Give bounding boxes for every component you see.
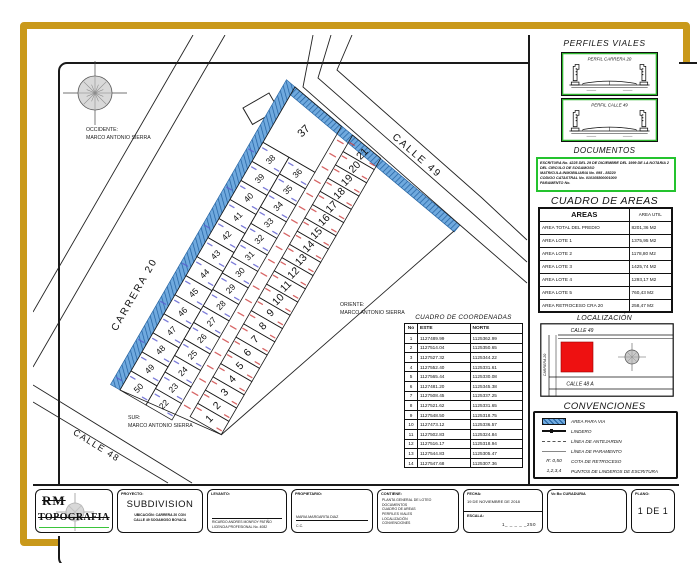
- contiene-lines: PLANTA GENERAL DE LOTEODOCUMENTOSCUADRO …: [382, 498, 431, 526]
- legend-row: 1,2,3,4PUNTOS DE LINDEROS DE ESCRITURA: [537, 466, 674, 476]
- contiene-line: CONVENCIONES: [382, 521, 431, 526]
- lot-number: 27: [205, 315, 219, 329]
- column-header: NORTE: [470, 324, 523, 334]
- lot-number: 6: [241, 346, 254, 359]
- cell: 1125331.61: [470, 362, 523, 372]
- calle48-line: [33, 385, 192, 483]
- table-row: 111127502.831125324.84: [405, 429, 523, 439]
- legend-label: LÍNEA DE PARAMENTO: [571, 449, 622, 454]
- lot-number: 1: [203, 413, 216, 426]
- levanto-lines: RICARDO ANDRES MONROY PATIÑOLICENCIA PRO…: [212, 520, 272, 530]
- map-calle48a-label: CALLE 48 A: [566, 382, 594, 388]
- escala-value: 1_ _ _ _ _250: [502, 522, 536, 527]
- road-profile-svg: PERFIL CARRERA 20: [562, 53, 657, 95]
- cuadro-areas-title: CUADRO DE AREAS: [530, 195, 679, 207]
- cell: 9: [405, 410, 418, 420]
- lot-number: 50: [132, 381, 146, 395]
- cell: 1125305.47: [470, 449, 523, 459]
- carrera20-line: [33, 35, 193, 312]
- lot-number: 41: [231, 209, 245, 223]
- calle49-line: [318, 35, 527, 262]
- legend-label: PUNTOS DE LINDEROS DE ESCRITURA: [571, 469, 658, 474]
- areas-table: AREASAREA UTILAREA TOTAL DEL PREDIO8201,…: [538, 207, 673, 313]
- cell: 4: [405, 362, 418, 372]
- legend-label: LÍNEA DE ANTEJARDIN: [571, 439, 622, 444]
- logo-box: RM TOPOGRAFIA: [35, 489, 113, 533]
- signature-line: [212, 518, 282, 519]
- cell: 1125350.65: [470, 343, 523, 353]
- label-occidente: OCCIDENTE:: [86, 127, 118, 133]
- cell: 1125318.75: [470, 410, 523, 420]
- legend-symbol: [537, 418, 571, 425]
- levanto-line: LICENCIA PROFESIONAL No. 4082: [212, 525, 272, 530]
- lot-number: 31: [243, 249, 257, 263]
- lot-number: 47: [165, 324, 179, 338]
- cell: 1293,17 M2: [629, 273, 672, 286]
- lot-number: 3: [218, 386, 231, 399]
- contiene-box: CONTIENE: PLANTA GENERAL DE LOTEODOCUMEN…: [377, 489, 459, 533]
- cell: 1125345.38: [470, 381, 523, 391]
- north-compass-icon: [63, 61, 127, 125]
- map-calle49-label: CALLE 49: [571, 328, 594, 334]
- cell: 14: [405, 458, 418, 468]
- table-row: AREA LOTE 31425,74 M2: [539, 260, 672, 273]
- plano-box: PLANO: 1 DE 1: [631, 489, 675, 533]
- label-occidente: MARCO ANTONIO SIERRA: [86, 135, 151, 141]
- lot-number: 46: [176, 305, 190, 319]
- lot-number: 8: [257, 320, 270, 333]
- cell: 1127547.68: [418, 458, 471, 468]
- lot-number: 35: [281, 183, 295, 197]
- logo-company-text: TOPOGRAFIA: [38, 512, 112, 523]
- propietario-box: PROPIETARIO: MARIA MARGARITA DIAZ C.C.: [291, 489, 373, 533]
- lot-number: 23: [166, 381, 180, 395]
- documento-line: ESCRITURA No. 4225 DEL 29 DE DICIEMBRE D…: [540, 161, 672, 171]
- cell: 1127516.17: [418, 439, 471, 449]
- legend-label: AREA PARA VIA: [571, 419, 605, 424]
- lot-number: 39: [253, 171, 267, 185]
- cell: 760,43 M2: [629, 286, 672, 299]
- lot-number: 44: [198, 267, 212, 281]
- cell: 11: [405, 429, 418, 439]
- antejardin-swatch: [542, 441, 566, 442]
- table-row: 121127516.171125318.94: [405, 439, 523, 449]
- contiene-label: CONTIENE:: [381, 492, 402, 496]
- lot-number: 25: [185, 348, 199, 362]
- cell: AREA LOTE 1: [539, 234, 629, 247]
- cell: 1375,95 M2: [629, 234, 672, 247]
- table-row: 51127565.441125330.08: [405, 372, 523, 382]
- lot-number: 9: [264, 307, 277, 320]
- cell: 10: [405, 420, 418, 430]
- right-panel: PERFILES VIALES PERFIL CARRERA 20 PERFIL…: [528, 35, 679, 484]
- road-profile-carrera20: PERFIL CARRERA 20: [561, 52, 658, 96]
- proyecto-value: SUBDIVISION: [118, 499, 202, 510]
- cell: AREA LOTE 3: [539, 260, 629, 273]
- label-sur: SUR:: [128, 415, 140, 421]
- cell: 1127508.45: [418, 391, 471, 401]
- cell: AREA LOTE 5: [539, 286, 629, 299]
- table-header-row: AREASAREA UTIL: [539, 208, 672, 221]
- cell: 1125318.94: [470, 439, 523, 449]
- plano-label: PLANO:: [635, 492, 650, 496]
- cell: 8201,36 M2: [629, 221, 672, 234]
- logo-green-bar: [39, 527, 109, 529]
- cell: 1125362.99: [470, 334, 523, 344]
- cell: 13: [405, 449, 418, 459]
- cell: 12: [405, 439, 418, 449]
- table-row: AREA LOTE 11375,95 M2: [539, 234, 672, 247]
- table-row: AREA LOTE 21178,80 M2: [539, 247, 672, 260]
- cell: 1125324.84: [470, 429, 523, 439]
- cell: 7: [405, 391, 418, 401]
- cell: 1125337.25: [470, 391, 523, 401]
- location-red-marker: [561, 342, 593, 372]
- lot-number: 5: [234, 360, 247, 373]
- localizacion-title: LOCALIZACIÓN: [530, 315, 679, 322]
- cell: 1125331.65: [470, 401, 523, 411]
- escala-label: ESCALA:: [467, 514, 484, 518]
- vobo-label: Vo Bo CURADURIA: [551, 492, 586, 496]
- perfiles-viales-title: PERFILES VIALES: [530, 38, 679, 48]
- cell: AREA LOTE 4: [539, 273, 629, 286]
- coordinates-title: CUADRO DE COORDENADAS: [404, 314, 523, 321]
- column-header: AREA UTIL: [629, 208, 672, 221]
- table-row: AREA RETROCESO CRA 20258,47 M2: [539, 299, 672, 312]
- proyecto-box: PROYECTO: SUBDIVISION UBICACIÓN: CARRERA…: [117, 489, 203, 533]
- plano-value: 1 DE 1: [632, 506, 674, 516]
- table-row: 21127514.041125350.65: [405, 343, 523, 353]
- carrera20-line: [33, 35, 225, 367]
- label-sur: MARCO ANTONIO SIERRA: [128, 423, 193, 429]
- column-header: No: [405, 324, 418, 334]
- table-row: 131127544.831125305.47: [405, 449, 523, 459]
- label-calle48: CALLE 48: [71, 427, 121, 464]
- fecha-label: FECHA:: [467, 492, 481, 496]
- convenciones-legend: AREA PARA VIALINDEROLÍNEA DE ANTEJARDINL…: [533, 411, 678, 479]
- cell: 3: [405, 353, 418, 363]
- lot-number: 26: [195, 331, 209, 345]
- cell: 1127481.20: [418, 381, 471, 391]
- lot-number: 32: [252, 232, 266, 246]
- cell: 2: [405, 343, 418, 353]
- lot-number: 33: [262, 216, 276, 230]
- legend-label: LINDERO: [571, 429, 591, 434]
- lot-number: 28: [214, 298, 228, 312]
- legend-symbol: [537, 441, 571, 442]
- plan-sheet: 5049484746454443424140393822232425262728…: [0, 0, 697, 563]
- table-row: AREA TOTAL DEL PREDIO8201,36 M2: [539, 221, 672, 234]
- legend-symbol: 1,2,3,4: [537, 469, 571, 474]
- fecha-escala-box: FECHA: 19 DE NOVIEMBRE DE 2018 ESCALA: 1…: [463, 489, 543, 533]
- road-profile-svg: PERFIL CALLE 49: [562, 99, 657, 141]
- label-oriente: MARCO ANTONIO SIERRA: [340, 310, 405, 316]
- legend-row: LÍNEA DE PARAMENTO: [537, 446, 674, 456]
- cell: 1425,74 M2: [629, 260, 672, 273]
- fecha-cell: FECHA: 19 DE NOVIEMBRE DE 2018: [464, 490, 542, 512]
- lot-number: 45: [187, 286, 201, 300]
- ubicacion-line: CALLE 49 SOGAMOSO BOYACA: [118, 518, 202, 523]
- levanto-box: LEVANTO: RICARDO ANDRES MONROY PATIÑOLIC…: [207, 489, 287, 533]
- road-profile-calle49: PERFIL CALLE 49: [561, 98, 658, 142]
- paramento-swatch: [542, 451, 566, 452]
- documento-line: PARAMENTO No.: [540, 181, 672, 186]
- table-row: 41127552.401125331.61: [405, 362, 523, 372]
- cell: 1127565.44: [418, 372, 471, 382]
- legend-symbol: [537, 430, 571, 432]
- lot-number: 7: [249, 333, 262, 346]
- cell: 1127521.62: [418, 401, 471, 411]
- lot-number: 34: [271, 199, 285, 213]
- cell: 8: [405, 401, 418, 411]
- table-row: 91127548.501125318.75: [405, 410, 523, 420]
- table-row: 11127489.991125362.99: [405, 334, 523, 344]
- cell: 1127548.50: [418, 410, 471, 420]
- lot-number: 38: [264, 152, 278, 166]
- cell: 5: [405, 372, 418, 382]
- propietario-cc: C.C.: [296, 524, 303, 528]
- lot-number: 48: [154, 343, 168, 357]
- cell: 1127514.04: [418, 343, 471, 353]
- profile-title: PERFIL CARRERA 20: [588, 57, 632, 62]
- legend-row: R: 0,50COTA DE RETROCESO: [537, 456, 674, 466]
- table-row: 61127481.201125345.38: [405, 381, 523, 391]
- signature-line: [296, 520, 368, 521]
- cell: AREA RETROCESO CRA 20: [539, 299, 629, 312]
- propietario-label: PROPIETARIO:: [295, 492, 322, 496]
- cell: 1125307.36: [470, 458, 523, 468]
- logo-rm-text: RM: [42, 493, 112, 509]
- lot-number: 22: [157, 397, 171, 411]
- table-row: 31127527.321125344.22: [405, 353, 523, 363]
- documentos-box: ESCRITURA No. 4225 DEL 29 DE DICIEMBRE D…: [536, 157, 676, 192]
- table-row: 71127508.451125337.25: [405, 391, 523, 401]
- legend-symbol: [537, 451, 571, 452]
- column-header: ESTE: [418, 324, 471, 334]
- cell: AREA LOTE 2: [539, 247, 629, 260]
- cell: 1: [405, 334, 418, 344]
- hatch-swatch: [542, 418, 566, 425]
- lot-number: 4: [226, 373, 239, 386]
- cell: 1127489.99: [418, 334, 471, 344]
- fecha-value: 19 DE NOVIEMBRE DE 2018: [467, 499, 520, 504]
- legend-row: LÍNEA DE ANTEJARDIN: [537, 436, 674, 446]
- levanto-label: LEVANTO:: [211, 492, 230, 496]
- contiene-line: PLANTA GENERAL DE LOTEO: [382, 498, 431, 503]
- cell: 1127502.83: [418, 429, 471, 439]
- cell: 1127473.12: [418, 420, 471, 430]
- label-oriente: ORIENTE:: [340, 302, 365, 308]
- lot-number: 43: [209, 248, 223, 262]
- cell: 1125344.22: [470, 353, 523, 363]
- legend-row: LINDERO: [537, 426, 674, 436]
- map-carrera20-label: CARRERA 20: [543, 354, 547, 376]
- lot-number: 36: [290, 166, 304, 180]
- lot-number: 37: [295, 123, 312, 140]
- cell: AREA TOTAL DEL PREDIO: [539, 221, 629, 234]
- lot-number: 49: [143, 362, 157, 376]
- cell: 1125336.57: [470, 420, 523, 430]
- lindero-swatch: [542, 430, 566, 432]
- column-header: AREAS: [539, 208, 629, 221]
- lot-number: 2: [211, 399, 224, 412]
- lot-number: 42: [220, 228, 234, 242]
- cell: 6: [405, 381, 418, 391]
- proyecto-label: PROYECTO:: [121, 492, 144, 496]
- lot-number: 29: [224, 282, 238, 296]
- map-compass-icon: [618, 343, 646, 371]
- documentos-title: DOCUMENTOS: [530, 146, 679, 155]
- cell: 1178,80 M2: [629, 247, 672, 260]
- cell: 258,47 M2: [629, 299, 672, 312]
- legend-label: COTA DE RETROCESO: [571, 459, 621, 464]
- table-row: 141127547.681125307.36: [405, 458, 523, 468]
- table-row: 81127521.621125331.65: [405, 401, 523, 411]
- localizacion-map: CALLE 49CARRERA 20CALLE 48 A: [540, 323, 674, 397]
- coordinates-box: CUADRO DE COORDENADAS NoESTENORTE1112748…: [404, 314, 523, 468]
- cell: 1127552.40: [418, 362, 471, 372]
- table-row: AREA LOTE 5760,43 M2: [539, 286, 672, 299]
- coordinates-table: NoESTENORTE11127489.991125362.9921127514…: [404, 323, 523, 468]
- lot-number: 30: [233, 265, 247, 279]
- lot-number: 24: [176, 364, 190, 378]
- table-row: 101127473.121125336.57: [405, 420, 523, 430]
- vobo-box: Vo Bo CURADURIA: [547, 489, 627, 533]
- legend-symbol: R: 0,50: [537, 459, 571, 464]
- cell: 1125330.08: [470, 372, 523, 382]
- profile-title: PERFIL CALLE 49: [591, 103, 628, 108]
- legend-row: AREA PARA VIA: [537, 416, 674, 426]
- cell: 1127544.83: [418, 449, 471, 459]
- ubicacion-lines: UBICACIÓN: CARRERA 20 CONCALLE 49 SOGAMO…: [118, 513, 202, 523]
- title-block: RM TOPOGRAFIA PROYECTO: SUBDIVISION UBIC…: [33, 484, 679, 536]
- lot-number: 40: [242, 190, 256, 204]
- propietario-name: MARIA MARGARITA DIAZ: [296, 515, 338, 519]
- via-hatch-calle49: [289, 87, 460, 232]
- cell: 1127527.32: [418, 353, 471, 363]
- table-header-row: NoESTENORTE: [405, 324, 523, 334]
- table-row: AREA LOTE 41293,17 M2: [539, 273, 672, 286]
